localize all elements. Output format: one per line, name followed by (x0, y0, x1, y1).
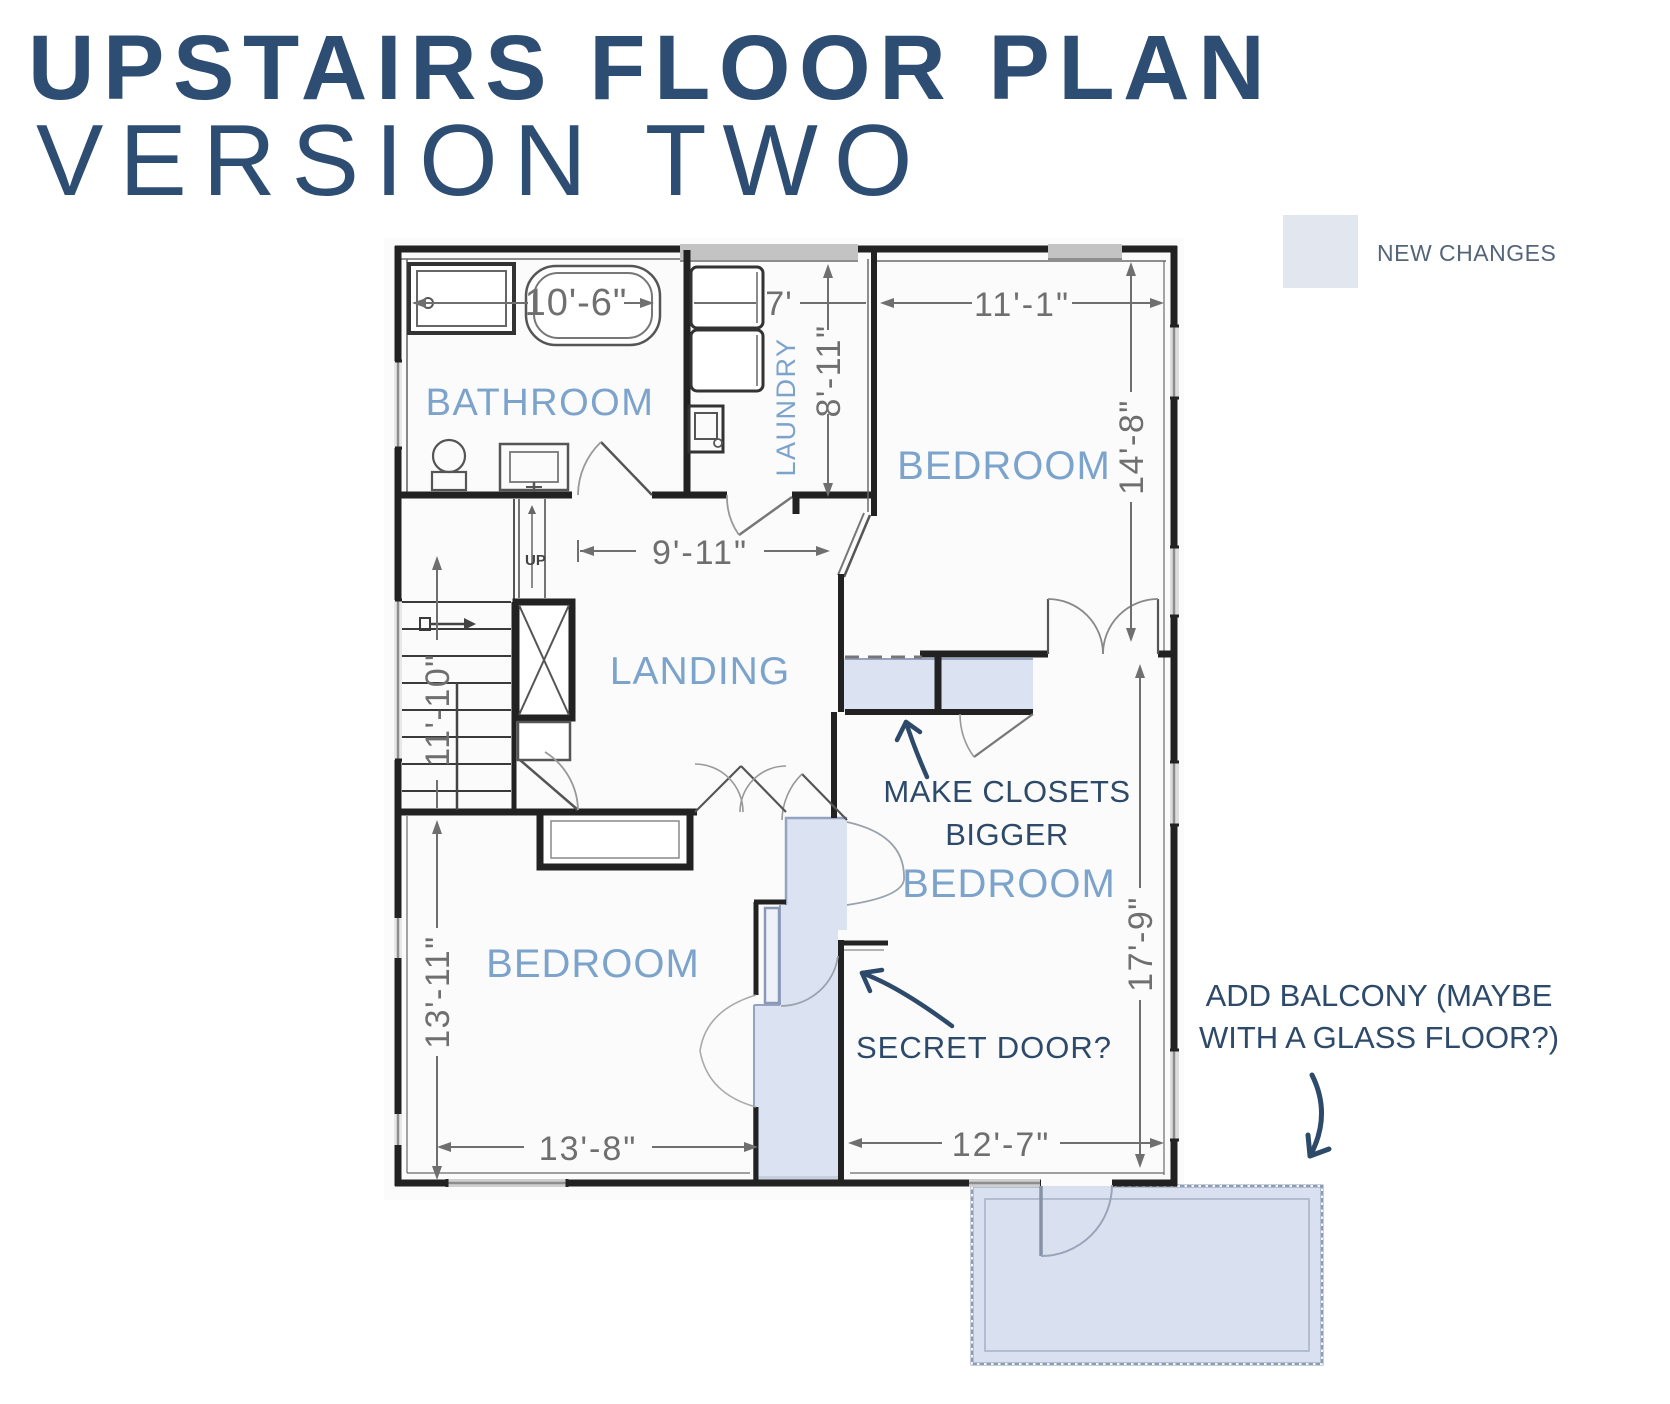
svg-text:LANDING: LANDING (610, 650, 790, 693)
svg-text:BATHROOM: BATHROOM (426, 382, 655, 424)
svg-text:ADD BALCONY (MAYBE: ADD BALCONY (MAYBE (1206, 978, 1553, 1013)
svg-text:UP: UP (525, 552, 546, 569)
svg-text:NEW CHANGES: NEW CHANGES (1377, 240, 1556, 266)
svg-text:13'-8": 13'-8" (539, 1130, 638, 1168)
svg-text:UPSTAIRS FLOOR PLAN: UPSTAIRS FLOOR PLAN (28, 17, 1273, 119)
svg-text:VERSION TWO: VERSION TWO (36, 105, 928, 217)
svg-text:9'-11": 9'-11" (652, 534, 748, 572)
svg-text:WITH A GLASS FLOOR?): WITH A GLASS FLOOR?) (1199, 1020, 1559, 1055)
svg-text:BEDROOM: BEDROOM (902, 862, 1116, 906)
svg-text:MAKE CLOSETS: MAKE CLOSETS (883, 774, 1130, 809)
svg-text:11'-10": 11'-10" (419, 653, 457, 767)
svg-text:BIGGER: BIGGER (945, 817, 1069, 852)
svg-text:8'-11": 8'-11" (810, 324, 848, 417)
svg-text:17'-9": 17'-9" (1122, 896, 1160, 992)
svg-text:13'-11": 13'-11" (419, 935, 457, 1049)
svg-text:11'-1": 11'-1" (974, 286, 1070, 324)
svg-text:12'-7": 12'-7" (952, 1126, 1051, 1164)
svg-text:7': 7' (765, 285, 792, 323)
svg-text:LAUNDRY: LAUNDRY (771, 337, 801, 476)
svg-text:BEDROOM: BEDROOM (897, 444, 1111, 488)
svg-text:SECRET DOOR?: SECRET DOOR? (856, 1030, 1112, 1065)
svg-text:BEDROOM: BEDROOM (486, 942, 700, 986)
svg-text:14'-8": 14'-8" (1113, 399, 1151, 495)
svg-text:10'-6": 10'-6" (525, 282, 628, 324)
